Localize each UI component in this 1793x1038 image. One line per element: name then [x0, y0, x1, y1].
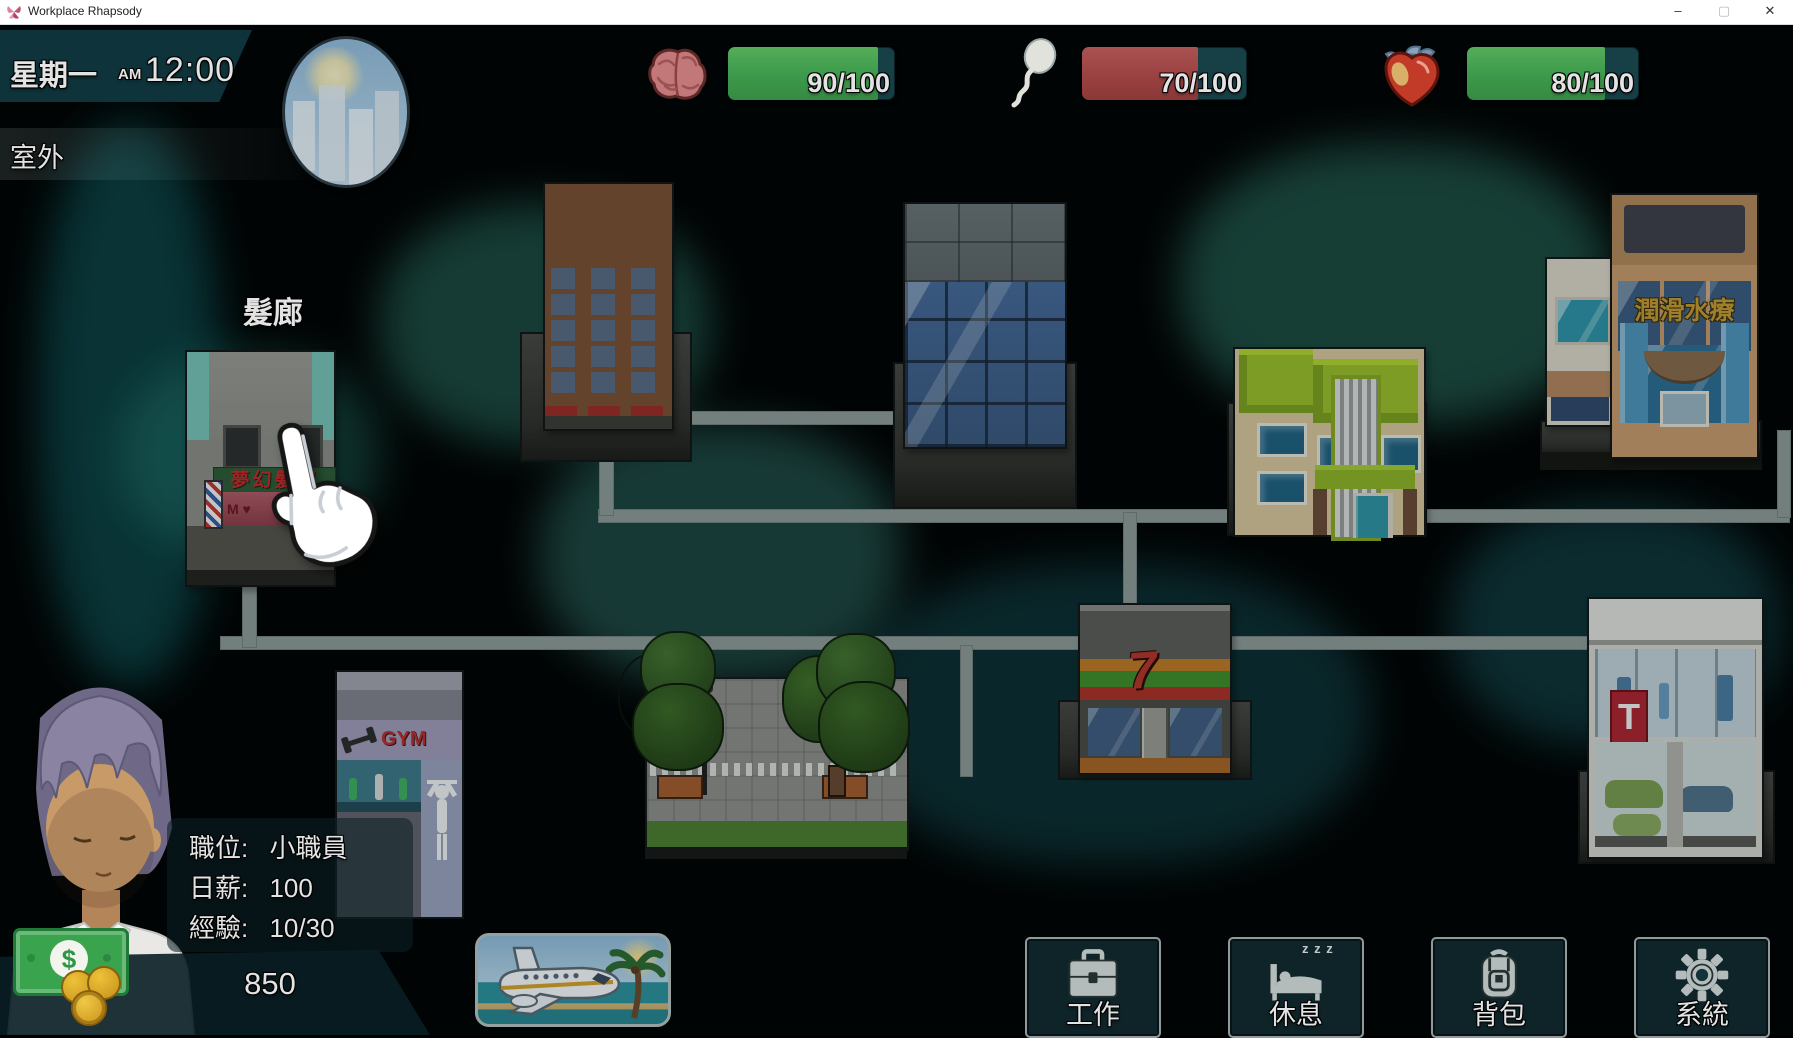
road-segment [960, 645, 973, 777]
system-button-label: 系統 [1636, 993, 1768, 1032]
heart-icon [1376, 42, 1448, 108]
park-bench [657, 775, 703, 799]
store-window [1170, 708, 1222, 756]
park-shadow [645, 847, 907, 859]
building-store[interactable]: 7 [1078, 603, 1232, 775]
gym-sign: GYM [381, 728, 427, 751]
hair-salon-label: 髮廊 [193, 288, 353, 332]
system-button[interactable]: 系統 [1634, 937, 1770, 1038]
sperm-icon [1000, 38, 1062, 108]
store-bottom-band [1080, 758, 1230, 773]
road-segment [1777, 430, 1791, 518]
spa-sign: 潤滑水療 [1620, 291, 1749, 327]
hand-cursor-icon [242, 411, 392, 576]
salary-label: 日薪: [189, 873, 248, 903]
greenhouse-pillar [1313, 489, 1327, 535]
backpack-button-label: 背包 [1433, 993, 1565, 1032]
work-button[interactable]: 工作 [1025, 937, 1161, 1038]
barber-pole-icon [204, 480, 223, 529]
backpack-button[interactable]: 背包 [1431, 937, 1567, 1038]
park-grass [645, 821, 909, 849]
green-roof [1239, 349, 1313, 413]
travel-button-shade [478, 936, 668, 1024]
app-icon [6, 4, 22, 20]
zzz-label: z z z [1302, 941, 1334, 956]
spa-roof-window [1624, 205, 1745, 253]
building-spa-annex[interactable] [1545, 257, 1615, 427]
apartment-entry [545, 416, 672, 429]
minimize-button[interactable]: – [1655, 0, 1701, 24]
greenhouse-window [1257, 423, 1307, 457]
weightlifter-icon [425, 774, 459, 866]
store-window [1088, 708, 1140, 756]
maximize-button[interactable]: ▢ [1701, 0, 1747, 24]
day-label: 星期一 [10, 52, 97, 94]
park[interactable] [610, 625, 910, 857]
health-value: 80/100 [1551, 68, 1634, 99]
energy-value: 70/100 [1159, 68, 1242, 99]
meridiem-label: AM [118, 66, 141, 83]
experience-row: 經驗: 10/30 [189, 908, 413, 948]
building-office[interactable] [903, 202, 1067, 449]
position-label: 職位: [189, 833, 248, 863]
salary-value: 100 [269, 873, 312, 903]
office-glass [905, 282, 1065, 447]
position-value: 小職員 [269, 833, 347, 863]
dumbbell-icon [336, 718, 383, 762]
gym-window [337, 760, 421, 812]
building-greenhouse[interactable] [1233, 347, 1426, 537]
salary-row: 日薪: 100 [189, 868, 413, 908]
greenhouse-pillar [1403, 489, 1417, 535]
gym-roof [337, 672, 462, 690]
road-segment [599, 454, 614, 516]
gym-banner [421, 760, 462, 917]
money-value: 850 [190, 966, 350, 1002]
spa-door [1660, 391, 1709, 427]
apartment-awnings [545, 406, 672, 416]
intellect-bar: 90/100 [728, 47, 895, 100]
greenhouse-door [1353, 493, 1393, 538]
dealer-roof [1589, 599, 1762, 645]
position-row: 職位: 小職員 [189, 828, 413, 868]
weather-icon [282, 36, 410, 188]
road-segment [598, 509, 1790, 523]
gym-sign-band: GYM [337, 720, 462, 760]
experience-value: 10/30 [269, 913, 334, 943]
experience-label: 經驗: [189, 913, 248, 943]
road-segment [688, 411, 896, 425]
time-label: 12:00 [145, 51, 235, 90]
spa-column [1721, 323, 1749, 423]
intellect-value: 90/100 [807, 68, 890, 99]
brain-icon [645, 46, 711, 104]
coin-icon [71, 990, 107, 1026]
apartment-windows [551, 266, 666, 398]
window-title: Workplace Rhapsody [28, 4, 142, 18]
road-segment [242, 578, 257, 648]
greenhouse-window [1257, 471, 1307, 505]
building-dealer[interactable]: T [1587, 597, 1764, 859]
money-icon: $ [13, 928, 133, 1033]
salon-trim [187, 352, 209, 440]
greenhouse-awning [1315, 465, 1415, 489]
health-bar: 80/100 [1467, 47, 1639, 100]
rest-button-label: 休息 [1230, 993, 1362, 1032]
close-button[interactable]: ✕ [1747, 0, 1793, 24]
road-segment [1123, 512, 1137, 607]
tree [632, 683, 724, 771]
window-titlebar: Workplace Rhapsody – ▢ ✕ [0, 0, 1793, 25]
rest-button[interactable]: z z z 休息 [1228, 937, 1364, 1038]
spa-column [1620, 323, 1648, 423]
store-sign: 7 [1126, 640, 1159, 702]
energy-bar: 70/100 [1082, 47, 1247, 100]
travel-button[interactable] [475, 933, 671, 1027]
work-button-label: 工作 [1027, 993, 1159, 1032]
tree [818, 681, 910, 773]
spa-annex-lower-window [1551, 397, 1609, 421]
player-info-panel: 職位: 小職員 日薪: 100 經驗: 10/30 [167, 818, 413, 952]
location-label: 室外 [10, 136, 64, 175]
building-apartment[interactable] [543, 182, 674, 431]
spa-annex-window [1555, 297, 1611, 345]
dealer-sign: T [1610, 690, 1648, 746]
spa-annex-band [1547, 371, 1613, 397]
dealer-divider [1667, 742, 1683, 847]
office-top [905, 204, 1065, 282]
apartment-roof-wall [545, 184, 672, 262]
store-door [1142, 708, 1168, 760]
building-spa[interactable]: 潤滑水療 [1610, 193, 1759, 459]
gym-band [337, 690, 462, 720]
